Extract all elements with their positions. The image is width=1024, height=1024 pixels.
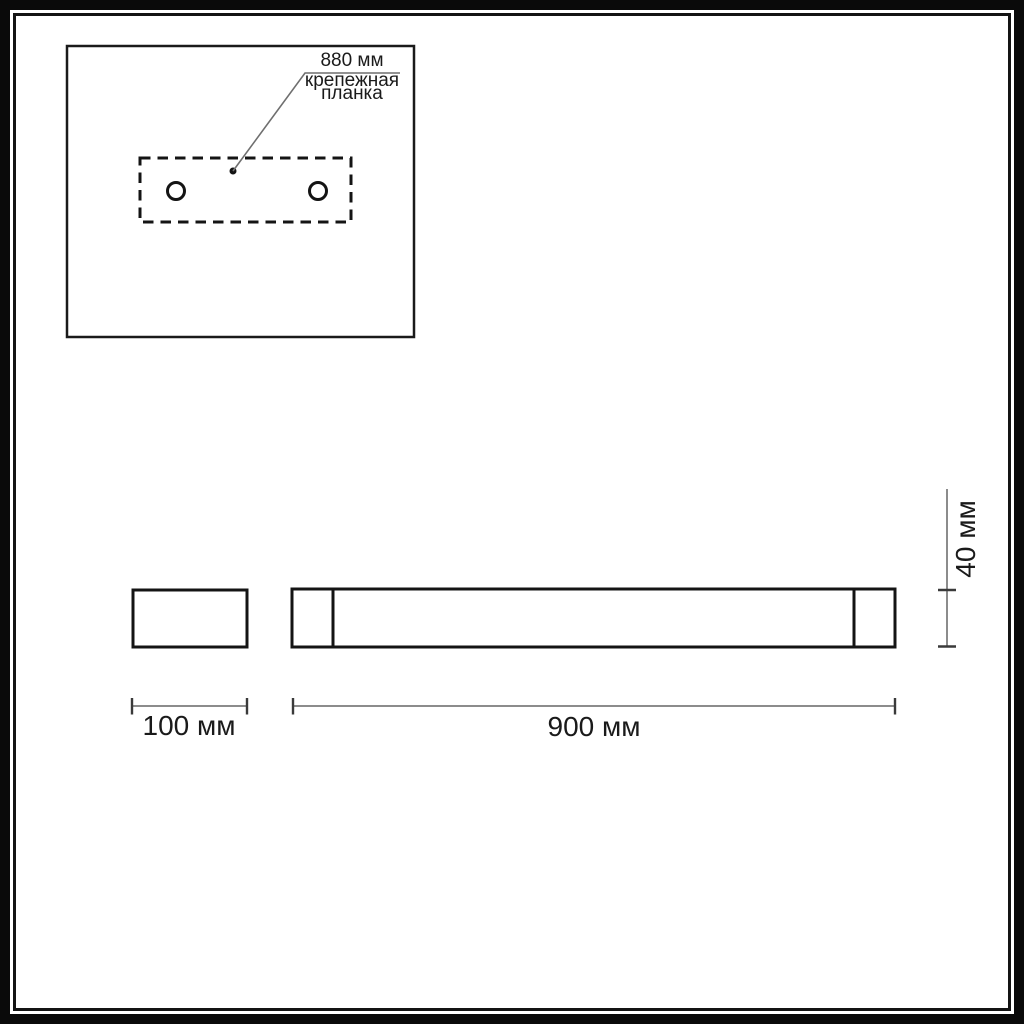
callout-part-label-line2: планка: [272, 88, 432, 101]
drawing-canvas: 880 мм крепежная планка 100 мм 900 мм 40…: [0, 0, 1024, 1024]
diagram-linework: [10, 10, 1014, 1014]
callout-part-label: крепежная планка: [272, 75, 432, 100]
callout-dimension-label: 880 мм: [292, 51, 412, 70]
length-dimension-label: 900 мм: [514, 712, 674, 742]
front-view-rect: [292, 589, 895, 647]
height-dimension-label: 40 мм: [951, 479, 981, 599]
side-view-rect: [133, 590, 247, 647]
depth-dimension-label: 100 мм: [119, 711, 259, 741]
